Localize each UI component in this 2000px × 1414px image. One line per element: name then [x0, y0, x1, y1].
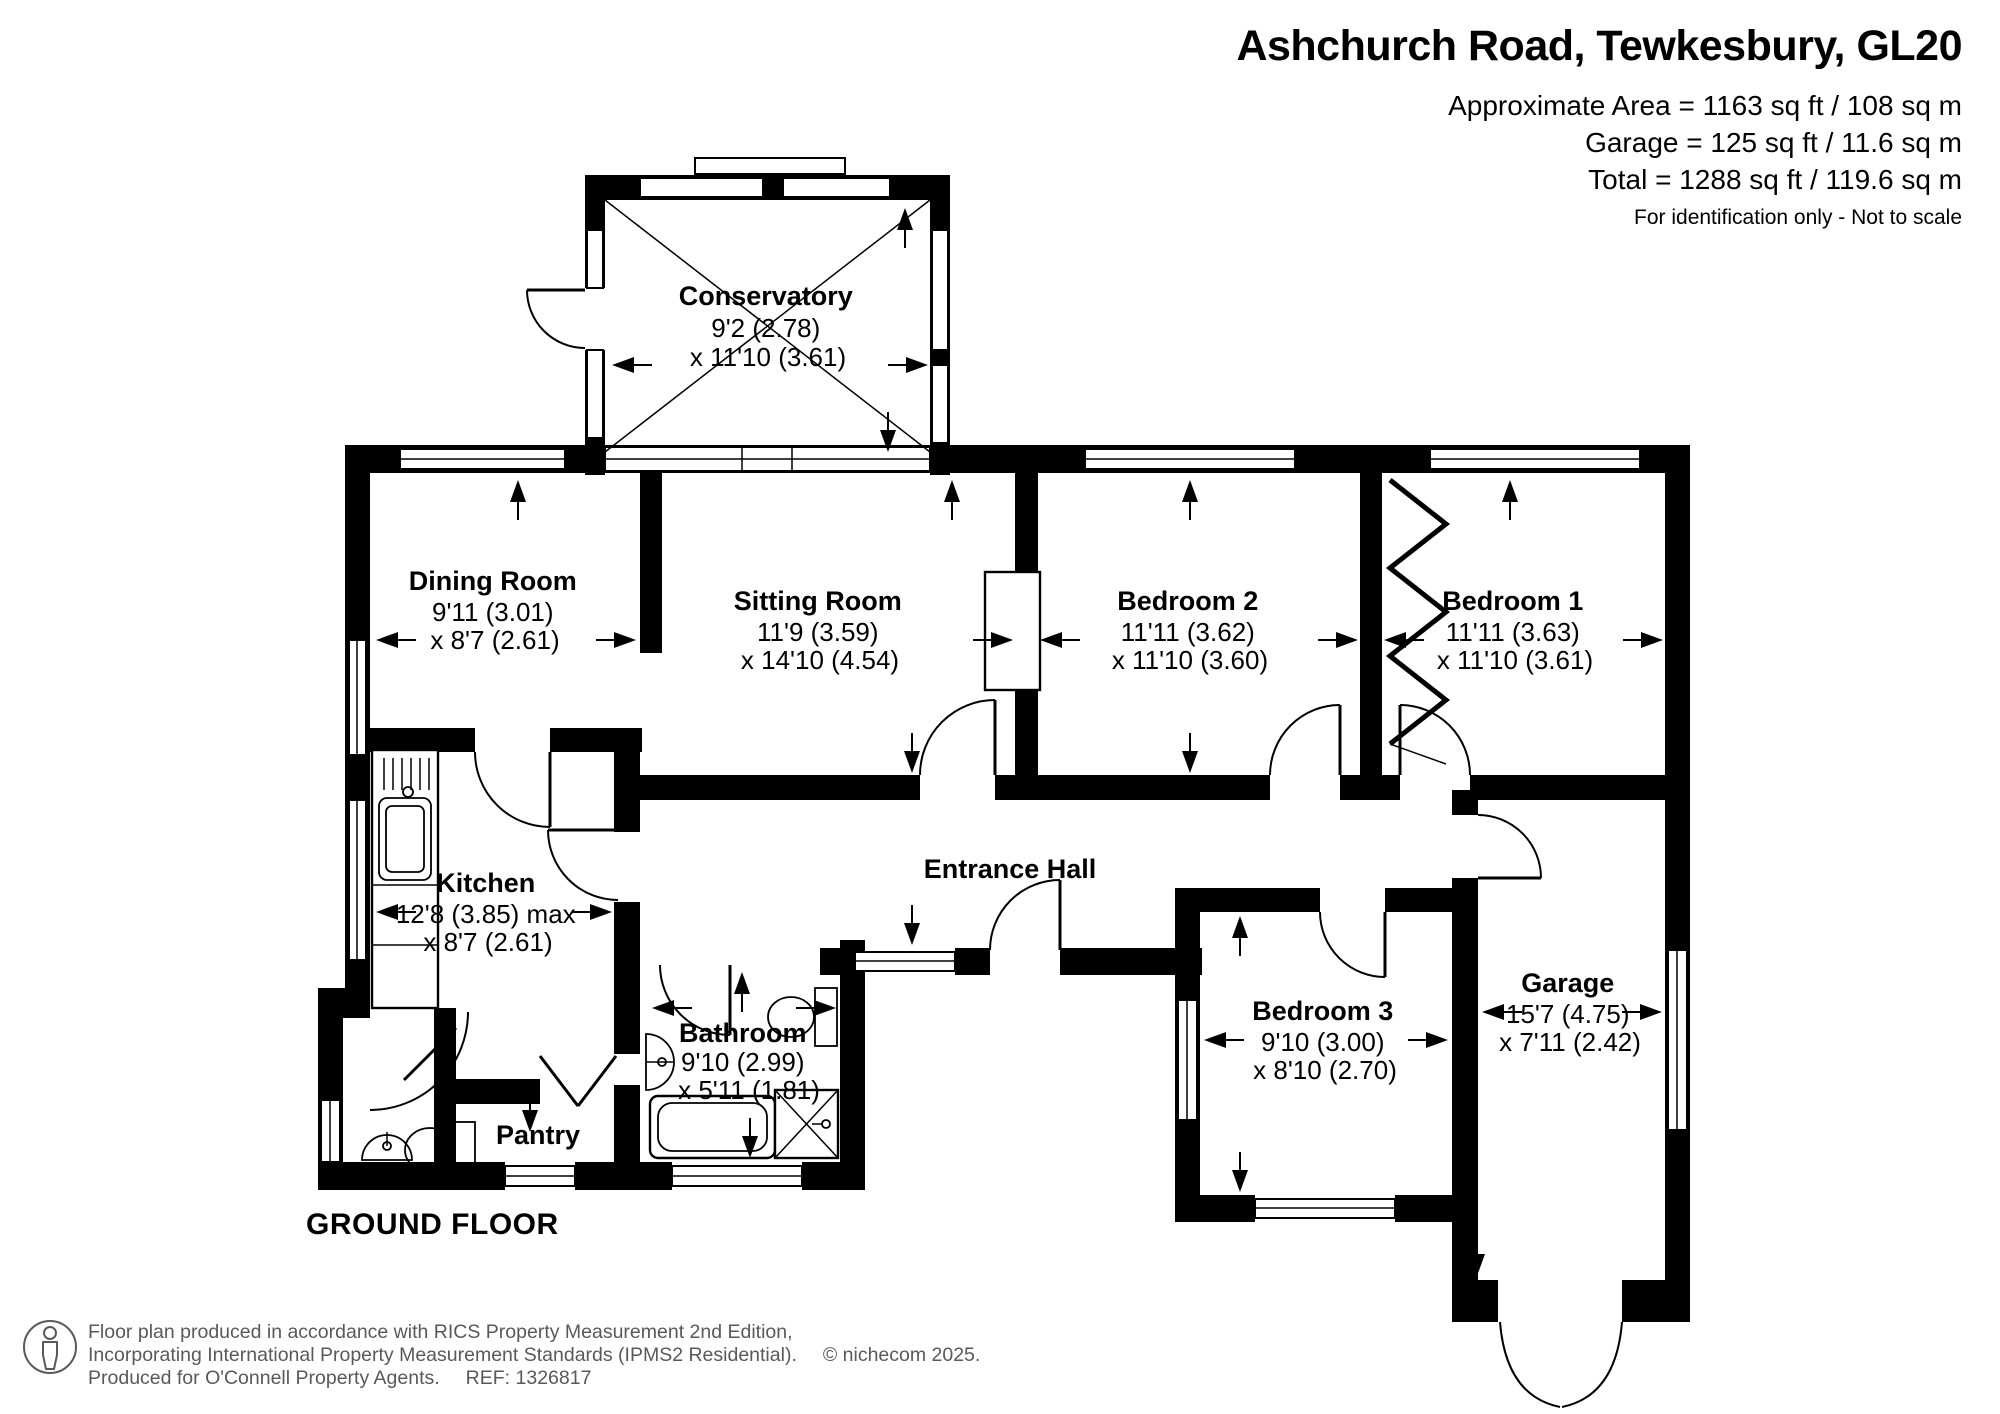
floorplan-drawing: Conservatory 9'2 (2.78) x 11'10 (3.61) D…	[0, 0, 2000, 1414]
conservatory-ridge	[695, 158, 845, 174]
room-label-entrance-hall: Entrance Hall	[924, 854, 1097, 884]
floor-label: GROUND FLOOR	[306, 1208, 559, 1242]
room-label-bedroom3: Bedroom 3 9'10 (3.00) x 8'10 (2.70)	[1252, 996, 1397, 1085]
window	[587, 230, 603, 288]
door-garage-side	[1478, 815, 1541, 878]
door-dining-kitchen	[475, 752, 550, 827]
footer-line2: Incorporating International Property Mea…	[88, 1344, 980, 1367]
bathtub-icon	[650, 1096, 775, 1158]
room-label-bedroom1: Bedroom 1 11'11 (3.63) x 11'10 (3.61)	[1437, 586, 1593, 675]
room-label-conservatory: Conservatory 9'2 (2.78) x 11'10 (3.61)	[679, 281, 858, 372]
door-sitting-room	[920, 700, 995, 775]
room-label-sitting: Sitting Room 11'9 (3.59) x 14'10 (4.54)	[734, 586, 906, 675]
chimney-breast	[985, 572, 1040, 690]
kitchen-counter-icon	[372, 750, 438, 1008]
door-conservatory	[527, 290, 585, 348]
room-label-dining: Dining Room 9'11 (3.01) x 8'7 (2.61)	[409, 566, 581, 655]
person-icon	[22, 1318, 78, 1376]
room-label-pantry: Pantry	[496, 1120, 580, 1150]
door-kitchen	[548, 830, 618, 900]
footer-text: Floor plan produced in accordance with R…	[88, 1318, 980, 1390]
garage-door-arcs	[1500, 1322, 1622, 1407]
window	[587, 350, 603, 438]
footer: Floor plan produced in accordance with R…	[22, 1318, 980, 1390]
door-bedroom2	[1270, 705, 1340, 775]
room-label-bathroom: Bathroom 9'10 (2.99) x 5'11 (1.81)	[678, 1018, 820, 1105]
door-front	[990, 880, 1060, 950]
reference-number: REF: 1326817	[466, 1367, 592, 1389]
footer-line1: Floor plan produced in accordance with R…	[88, 1321, 980, 1344]
room-label-bedroom2: Bedroom 2 11'11 (3.62) x 11'10 (3.60)	[1112, 586, 1268, 675]
bath-sink-icon	[646, 1034, 674, 1090]
door-pantry-v	[540, 1056, 616, 1106]
window	[932, 230, 948, 350]
room-label-garage: Garage 15'7 (4.75) x 7'11 (2.42)	[1499, 968, 1641, 1057]
footer-line3: Produced for O'Connell Property Agents.R…	[88, 1367, 980, 1390]
door-bedroom3	[1320, 912, 1385, 977]
wardrobe-zigzag	[1390, 480, 1446, 764]
door-bedroom1	[1400, 705, 1470, 775]
copyright: © nichecom 2025.	[823, 1344, 980, 1366]
window	[932, 365, 948, 443]
